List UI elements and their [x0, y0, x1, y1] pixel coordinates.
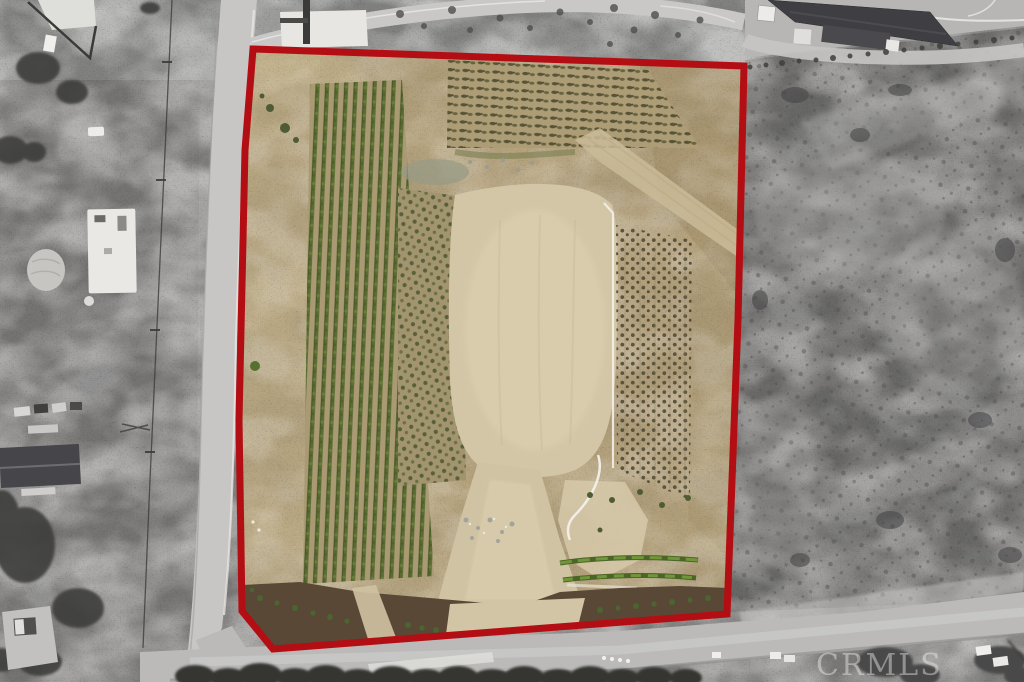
property-parcel [230, 40, 750, 660]
right-scrub-details [728, 28, 1024, 630]
dirt-mound [27, 249, 65, 291]
white-truck [43, 34, 58, 53]
watermark: CRMLS [816, 648, 943, 682]
orchard-right [616, 225, 692, 500]
aerial-photo-canvas: CRMLS [0, 0, 1024, 682]
concrete-pad [87, 209, 136, 294]
house-with-yard [2, 606, 58, 670]
box-truck [793, 28, 811, 44]
graded-dirt-clearing [449, 184, 618, 477]
white-van [88, 127, 104, 137]
aerial-photo: CRMLS [0, 0, 1024, 682]
small-white-building [757, 5, 775, 22]
